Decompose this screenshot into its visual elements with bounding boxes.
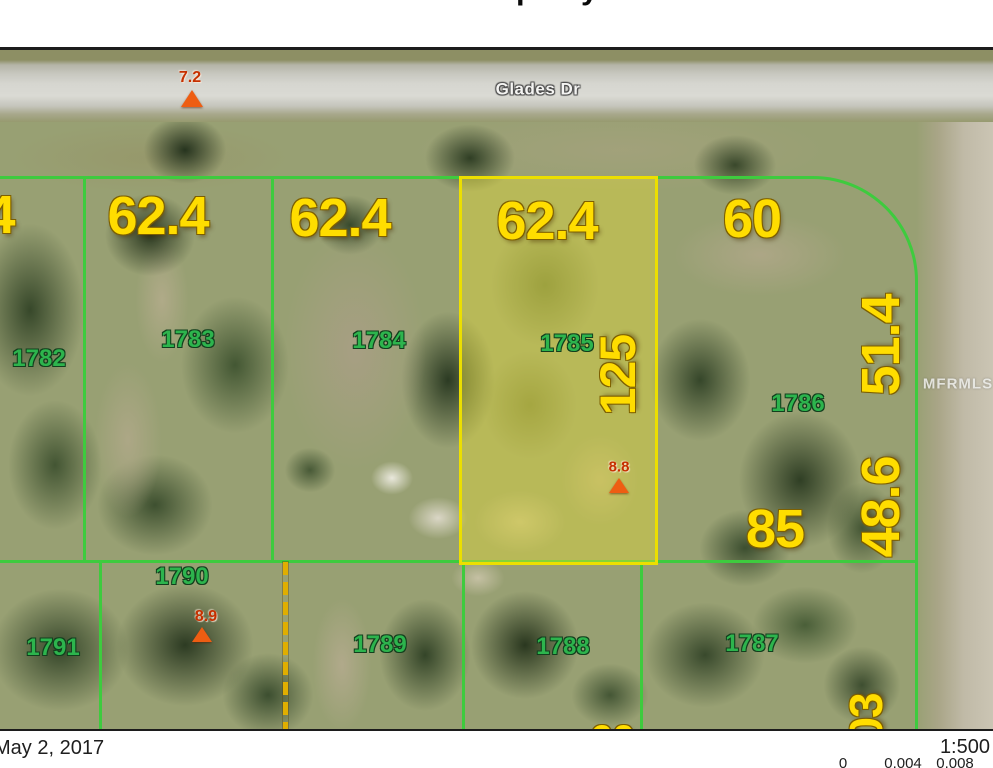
aerial-parcel-map: Glades Dr 7.2 4 62.4 62.4 62.4 60 125 51… xyxy=(0,50,993,729)
dimension-label-48-6: 48.6 xyxy=(854,456,908,557)
parcel-label-1788: 1788 xyxy=(536,635,589,659)
parcel-label-1787: 1787 xyxy=(725,632,778,656)
parcel-label-1782: 1782 xyxy=(12,347,65,371)
dimension-label-85: 85 xyxy=(746,502,804,556)
parcel-boundary-top xyxy=(0,176,780,179)
parcel-label-1786: 1786 xyxy=(771,392,824,416)
dimension-label-1785-depth: 125 xyxy=(593,335,643,415)
footer-bar: May 2, 2017 1:500 0 0.004 0.008 xyxy=(0,731,993,768)
scale-bar-tick: 0.008 xyxy=(936,755,974,768)
scale-bar-tick: 0 xyxy=(839,755,847,768)
elevation-marker-triangle xyxy=(609,478,629,493)
parcel-boundary-1782-1783 xyxy=(83,176,86,563)
street-label: Glades Dr xyxy=(496,81,581,98)
mfrmls-watermark: MFRMLS xyxy=(923,377,993,392)
dimension-label-51-4: 51.4 xyxy=(854,294,908,395)
elevation-marker-value: 7.2 xyxy=(179,70,201,86)
parcel-label-1785: 1785 xyxy=(540,332,593,356)
clipped-title-fragment: p xyxy=(516,0,535,4)
mls-map-screenshot: { "header": { "clipped_title_fragments":… xyxy=(0,0,993,768)
dimension-label-partial-bottom-right: 03 xyxy=(843,693,889,729)
side-road xyxy=(916,108,993,729)
parcel-boundary-1788-1787 xyxy=(640,560,643,729)
dimension-label-partial-bottom: 60 xyxy=(590,719,635,729)
parcel-boundary-right xyxy=(915,340,918,729)
scale-bar-tick: 0.004 xyxy=(884,755,922,768)
parcel-boundary-dashed-1790-1789 xyxy=(283,562,288,729)
parcel-boundary-1791-1790 xyxy=(99,560,102,729)
dimension-label-1784: 62.4 xyxy=(289,191,390,245)
parcel-label-1790: 1790 xyxy=(155,565,208,589)
dimension-label-1786: 60 xyxy=(723,192,781,246)
dimension-label-1783: 62.4 xyxy=(107,189,208,243)
dimension-label-1785: 62.4 xyxy=(496,194,597,248)
parcel-label-1784: 1784 xyxy=(352,329,405,353)
elevation-marker-value: 8.8 xyxy=(609,460,630,475)
parcel-boundary-1783-1784 xyxy=(271,176,274,563)
elevation-marker-value: 8.9 xyxy=(195,609,217,625)
elevation-marker-triangle xyxy=(181,90,203,107)
elevation-marker-triangle xyxy=(192,627,212,642)
dimension-label-partial-left: 4 xyxy=(0,188,15,242)
parcel-label-1789: 1789 xyxy=(353,633,406,657)
top-strip: p y xyxy=(0,0,993,47)
parcel-label-1783: 1783 xyxy=(161,328,214,352)
clipped-title-fragment: y xyxy=(581,0,598,4)
parcel-boundary-1789-1788 xyxy=(462,560,465,729)
parcel-label-1791: 1791 xyxy=(26,636,79,660)
map-date: May 2, 2017 xyxy=(0,737,104,760)
